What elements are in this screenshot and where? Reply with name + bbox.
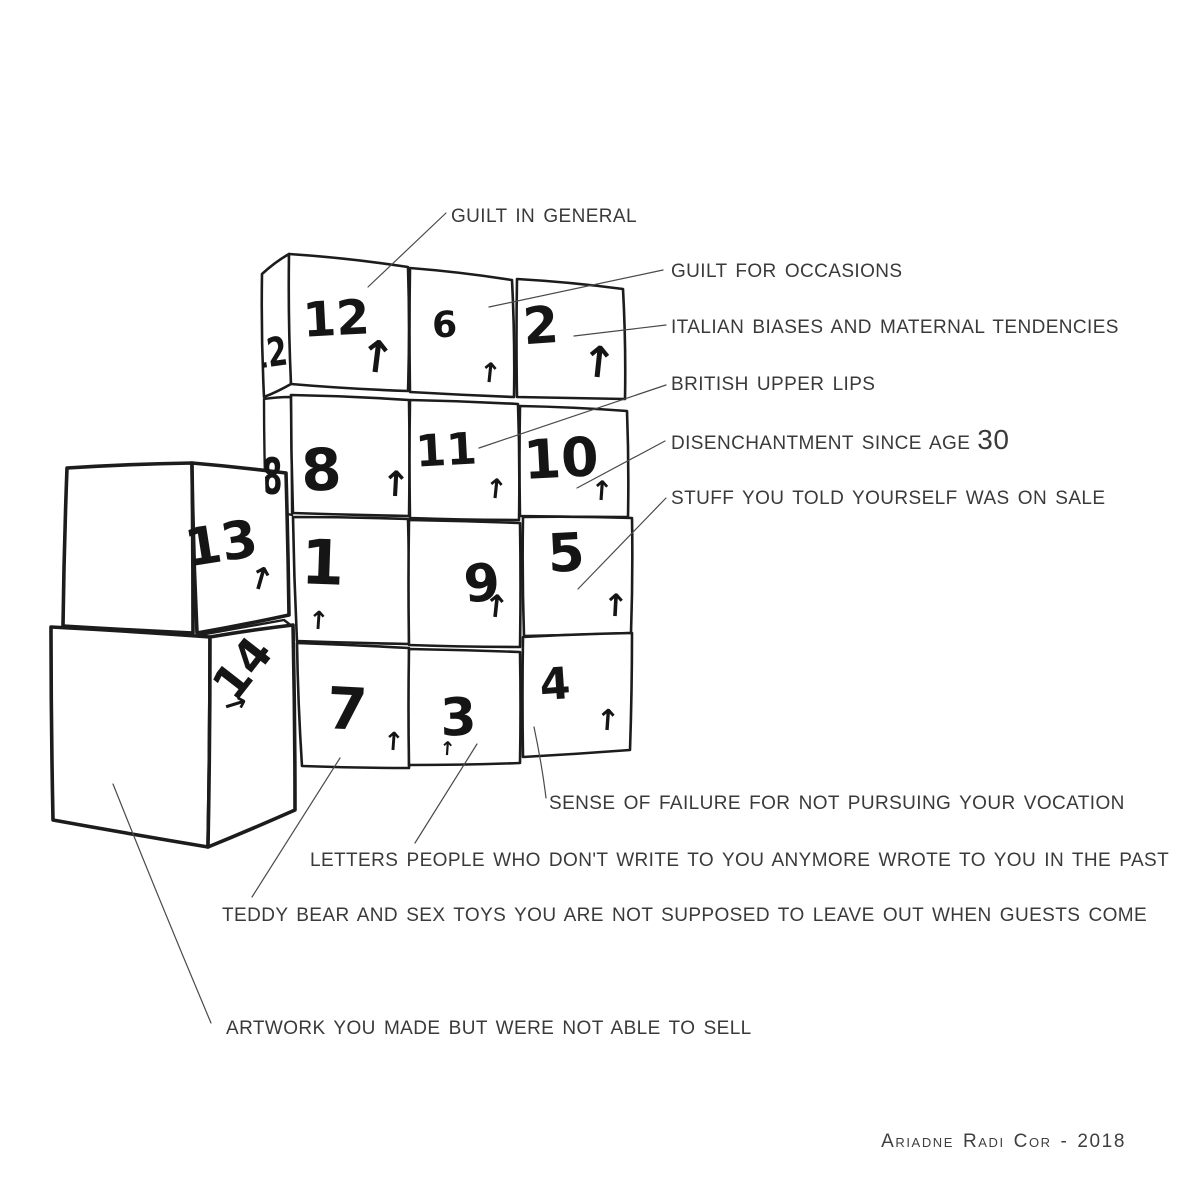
box-7-number: 7 xyxy=(325,674,369,744)
box-8-up-arrow-icon: ↑ xyxy=(380,464,411,505)
label-guilt-in-general: GUILT IN GENERAL xyxy=(451,206,637,227)
label-disenchantment-age-number: 30 xyxy=(977,424,1009,455)
label-disenchantment: DISENCHANTMENT SINCE AGE30 xyxy=(671,424,1009,455)
box-7-up-arrow-icon: ↑ xyxy=(382,726,405,756)
artwork-page: 12 8 12 6 2 8 11 10 1 9 5 7 3 4 13 14 ↑ … xyxy=(0,0,1181,1181)
box-12-side-number-wrap: 12 xyxy=(244,329,290,380)
label-british-upper-lips: BRITISH UPPER LIPS xyxy=(671,374,875,395)
box-12-side-number: 12 xyxy=(244,329,290,380)
box-12-up-arrow-icon: ↑ xyxy=(355,330,398,385)
label-italian-biases: ITALIAN BIASES AND MATERNAL TENDENCIES xyxy=(671,317,1119,338)
label-stuff-on-sale: STUFF YOU TOLD YOURSELF WAS ON SALE xyxy=(671,488,1105,509)
artist-signature: Ariadne Radi Cor - 2018 xyxy=(881,1131,1126,1152)
box-9-up-arrow-icon: ↑ xyxy=(481,588,511,627)
box-6-number: 6 xyxy=(431,305,457,347)
box-3-up-arrow-icon: ↑ xyxy=(439,737,456,760)
box-4-number: 4 xyxy=(538,658,572,711)
label-letters: LETTERS PEOPLE WHO DON'T WRITE TO YOU AN… xyxy=(310,850,1169,871)
label-sense-of-failure: SENSE OF FAILURE FOR NOT PURSUING YOUR V… xyxy=(549,793,1125,814)
box-5-number: 5 xyxy=(546,522,586,585)
label-guilt-for-occasions: GUILT FOR OCCASIONS xyxy=(671,261,902,282)
box-4-up-arrow-icon: ↑ xyxy=(594,702,621,738)
box-4-face xyxy=(523,633,633,757)
box-2-up-arrow-icon: ↑ xyxy=(578,336,619,389)
box-11-number: 11 xyxy=(414,423,478,477)
box-11-up-arrow-icon: ↑ xyxy=(483,473,509,506)
box-14-front-face xyxy=(51,627,210,847)
label-artwork: ARTWORK YOU MADE BUT WERE NOT ABLE TO SE… xyxy=(226,1018,752,1039)
box-1-number: 1 xyxy=(300,525,346,599)
label-teddy-bear: TEDDY BEAR AND SEX TOYS YOU ARE NOT SUPP… xyxy=(222,905,1147,926)
box-illustration: 12 8 12 6 2 8 11 10 1 9 5 7 3 4 13 14 ↑ … xyxy=(0,0,1181,1181)
box-5-up-arrow-icon: ↑ xyxy=(602,587,630,624)
label-disenchantment-text: DISENCHANTMENT SINCE AGE xyxy=(671,433,970,454)
box-1-up-arrow-icon: ↑ xyxy=(307,605,330,635)
box-10-up-arrow-icon: ↑ xyxy=(589,475,614,508)
box-8-number: 8 xyxy=(300,435,343,504)
box-2-number: 2 xyxy=(521,296,561,357)
box-13-front-face xyxy=(63,463,193,633)
box-6-up-arrow-icon: ↑ xyxy=(477,357,503,390)
box-10-number: 10 xyxy=(522,425,600,492)
